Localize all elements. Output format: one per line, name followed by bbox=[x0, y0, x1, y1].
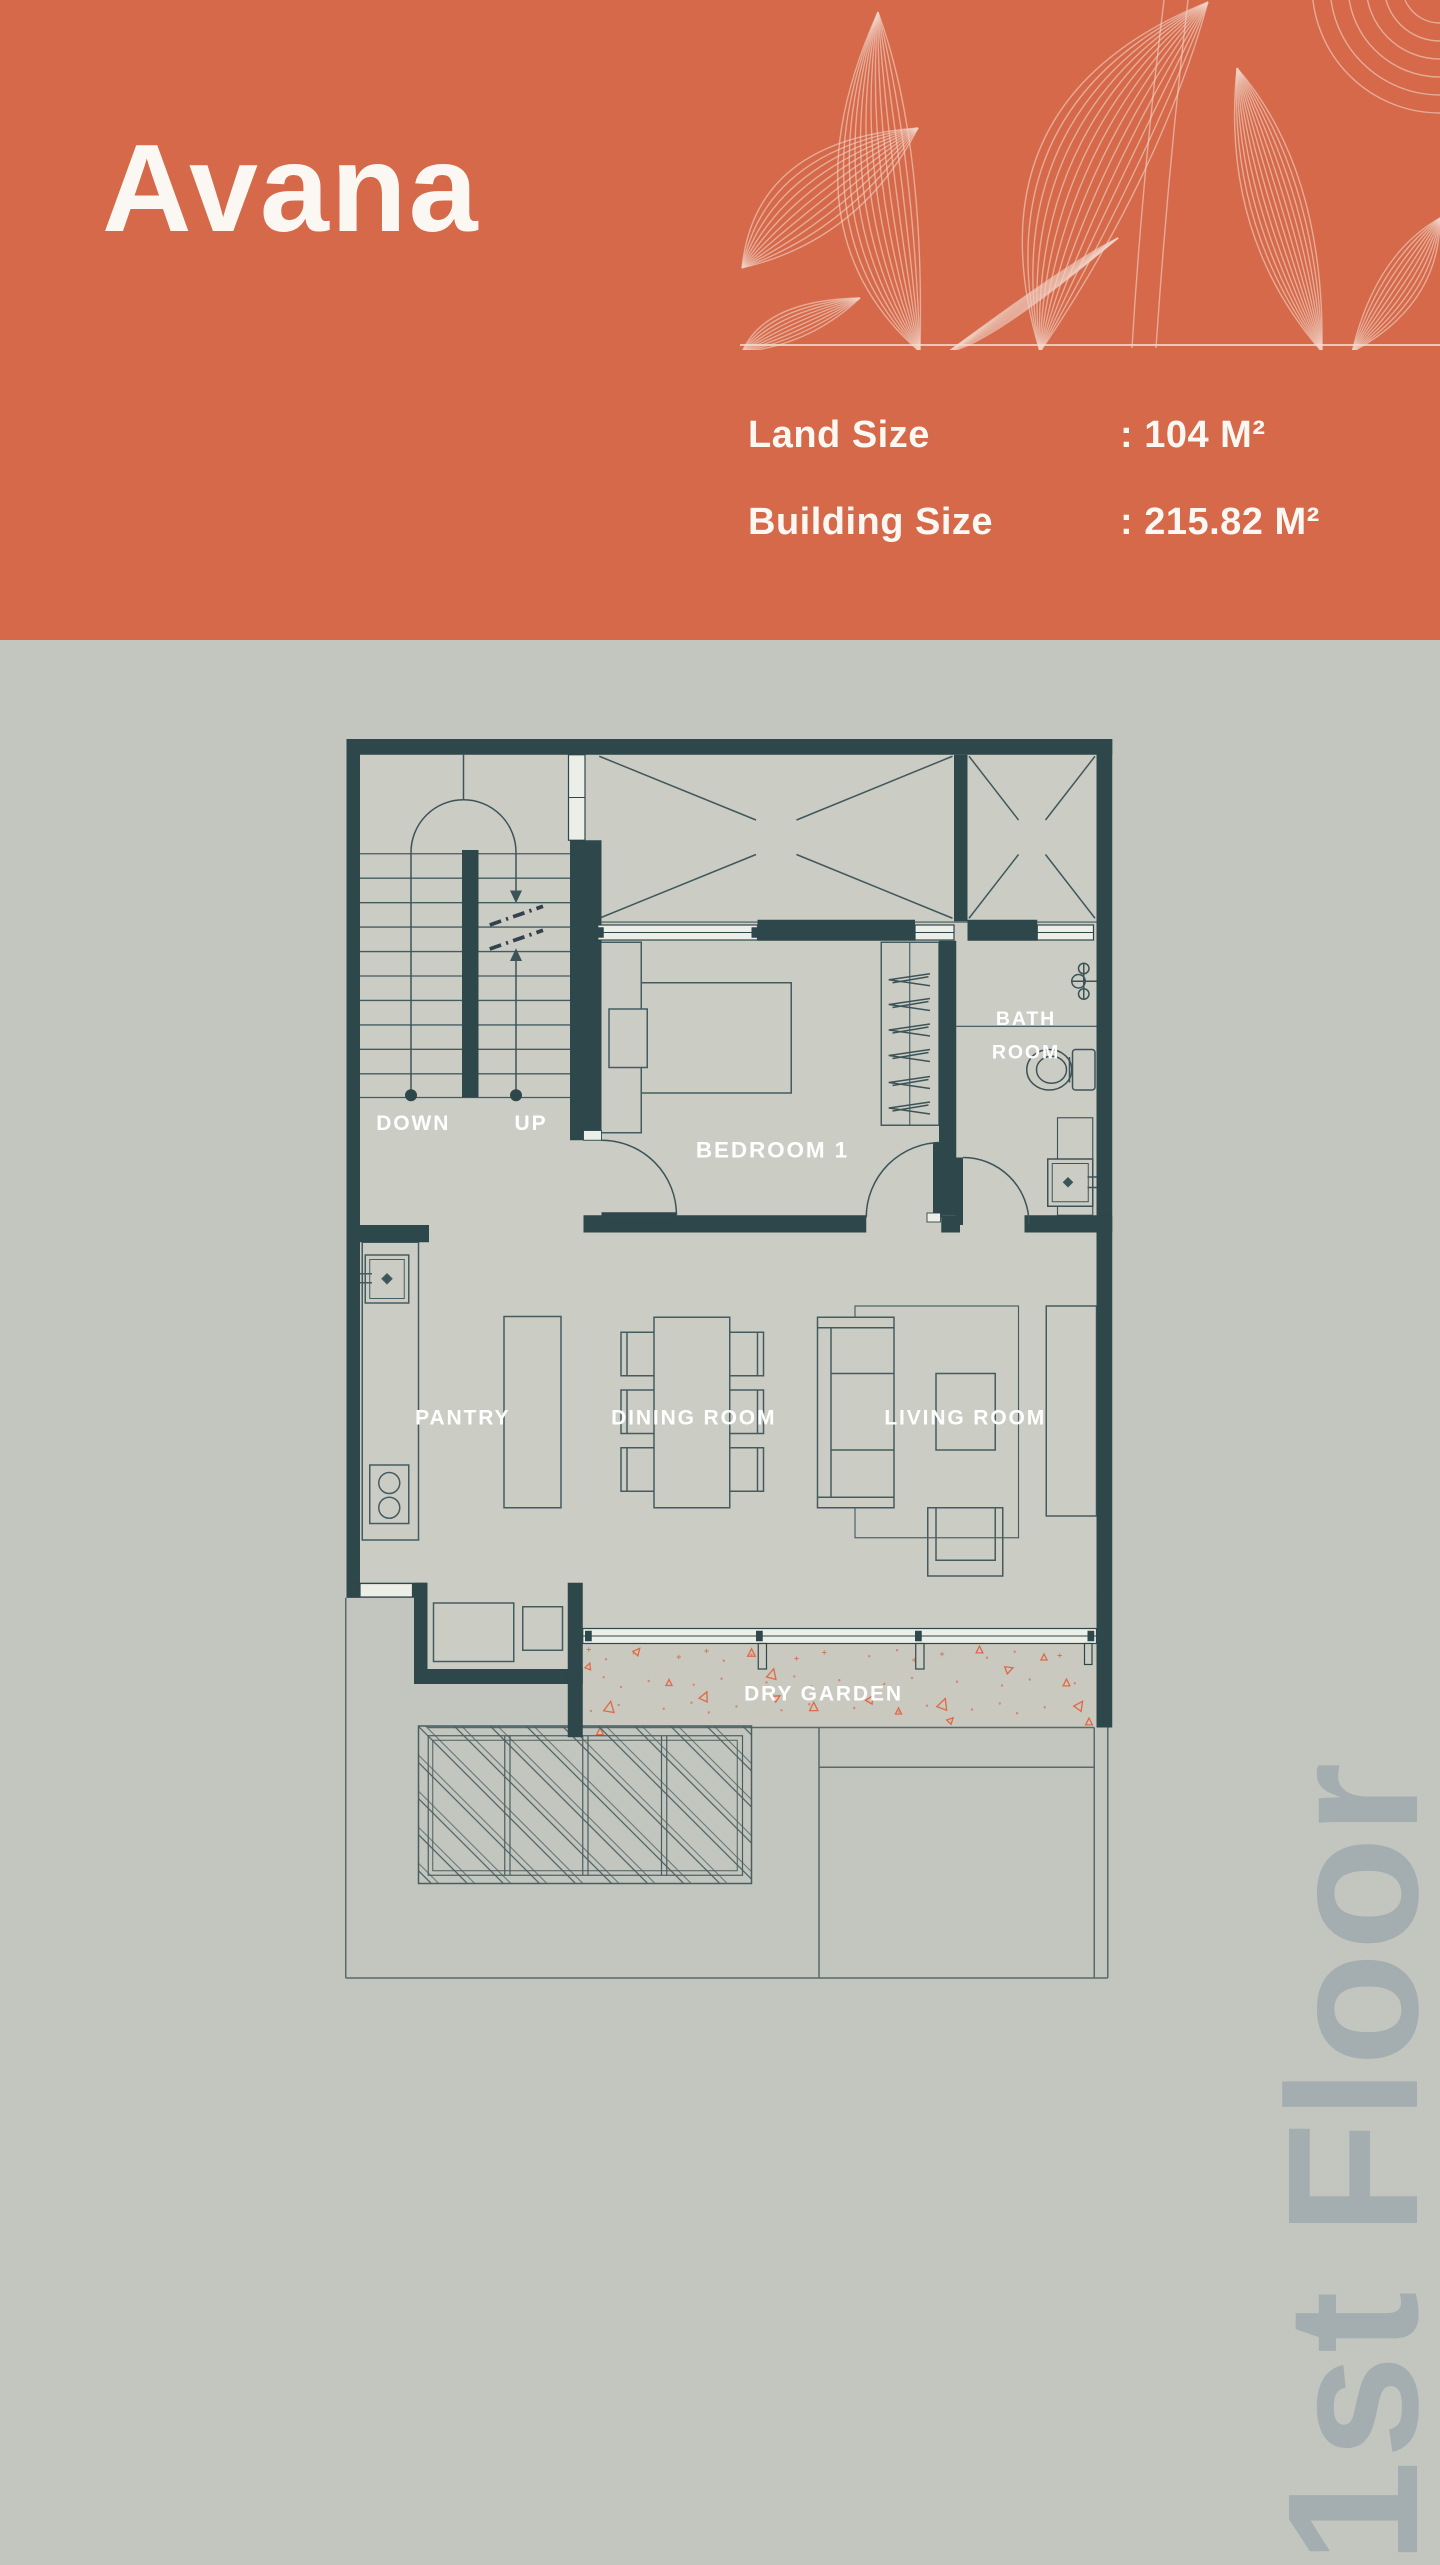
floor-plan-area: DOWN UP BEDROOM 1 BATH ROOM PANTRY DININ… bbox=[0, 640, 1440, 2560]
pantry-label: PANTRY bbox=[415, 1407, 510, 1430]
door-leaf bbox=[956, 1158, 964, 1226]
door-leaf bbox=[933, 1143, 942, 1218]
land-size-label: Land Size bbox=[748, 414, 1120, 457]
window-mullion bbox=[1085, 1644, 1093, 1665]
pantry-window bbox=[360, 1584, 413, 1598]
kitchen-sink-icon bbox=[360, 1255, 409, 1303]
header-banner: Avana Land Size : 104 M² Building Size :… bbox=[0, 0, 1440, 640]
building-size-row: Building Size : 215.82 M² bbox=[748, 501, 1388, 544]
page-title: Avana bbox=[102, 118, 480, 260]
spec-block: Land Size : 104 M² Building Size : 215.8… bbox=[748, 414, 1388, 588]
window-mullion bbox=[916, 1644, 924, 1670]
land-size-value: : 104 M² bbox=[1120, 414, 1388, 457]
floor-plan-drawing: DOWN UP BEDROOM 1 BATH ROOM PANTRY DININ… bbox=[0, 640, 1440, 2560]
floor-plan-poster: { "header": { "title": "Avana", "land_si… bbox=[0, 0, 1440, 2560]
door-leaf bbox=[602, 1212, 677, 1223]
building-size-value: : 215.82 M² bbox=[1120, 501, 1388, 544]
living-label: LIVING ROOM bbox=[884, 1407, 1046, 1430]
bathroom-label-line2: ROOM bbox=[992, 1042, 1060, 1064]
pillow bbox=[609, 1009, 647, 1068]
floor-number-watermark: 1st Floor bbox=[1252, 1664, 1440, 2564]
bedroom-label: BEDROOM 1 bbox=[696, 1138, 849, 1163]
dry-garden-label: DRY GARDEN bbox=[744, 1683, 903, 1706]
land-size-row: Land Size : 104 M² bbox=[748, 414, 1388, 457]
dining-label: DINING ROOM bbox=[611, 1407, 776, 1430]
carport-hatched-area bbox=[419, 1726, 752, 1884]
stair-divider-wall bbox=[462, 850, 479, 1098]
bathroom-label-line1: BATH bbox=[996, 1008, 1056, 1030]
leaf-line-art bbox=[740, 0, 1440, 350]
stairs-down-label: DOWN bbox=[376, 1112, 450, 1135]
stairs-up-label: UP bbox=[515, 1112, 548, 1135]
sofa bbox=[818, 1317, 895, 1508]
building-size-label: Building Size bbox=[748, 501, 1120, 544]
window-mullion bbox=[758, 1644, 766, 1670]
bed bbox=[641, 983, 791, 1093]
